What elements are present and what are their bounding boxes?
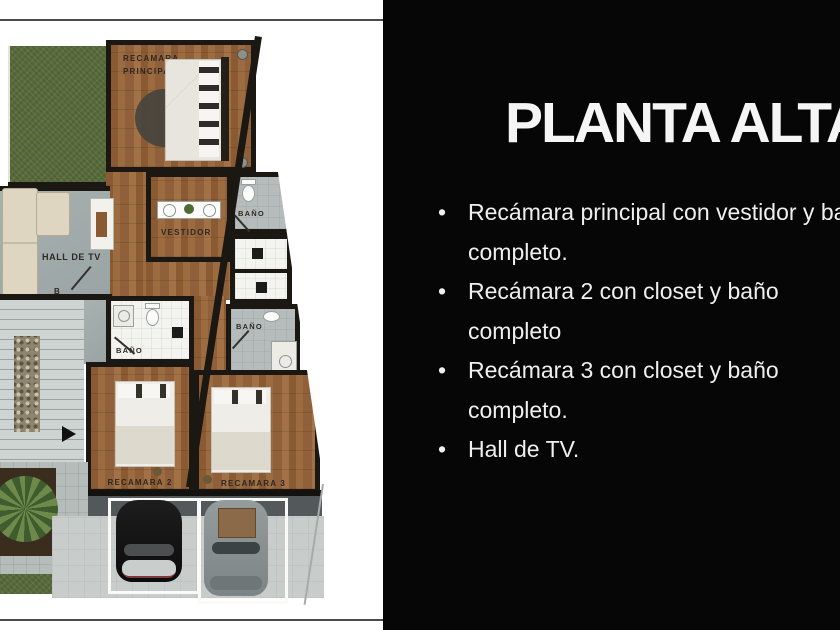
feature-text: completo. [468, 233, 840, 273]
car-roof-box [218, 508, 256, 538]
feature-item: • Recámara 2 con closet y baño completo [438, 272, 840, 351]
tv-unit-wood [96, 212, 107, 237]
closet-unit [256, 282, 267, 293]
sink [263, 311, 280, 322]
top-border-line [0, 19, 383, 21]
feature-list: • Recámara principal con vestidor y baño… [438, 193, 840, 470]
sink [163, 204, 176, 217]
bed-blanket [212, 432, 270, 470]
feature-text: Recámara 2 con closet y baño [468, 272, 840, 312]
closet-unit [172, 327, 183, 338]
room-recamara-2: RECAMARA 2 [86, 362, 194, 494]
nightstand [203, 475, 212, 484]
stair-landing [84, 300, 106, 364]
sink [203, 204, 216, 217]
sofa-chaise [36, 192, 70, 236]
toilet [242, 185, 255, 202]
garden [8, 46, 108, 184]
bed [115, 381, 175, 467]
bullet-marker: • [438, 193, 462, 233]
bed [211, 387, 271, 473]
pebble-garden [14, 336, 40, 432]
bullet-marker: • [438, 351, 462, 391]
car-hood [122, 560, 176, 578]
car-bumper [210, 576, 262, 590]
room-vestidor: VESTIDOR [146, 172, 232, 262]
room-recamara-principal: RECAMARA PRINCIPAL [106, 40, 256, 172]
feature-text: Hall de TV. [468, 430, 840, 470]
car-windshield [124, 544, 174, 556]
bed-headboard [221, 57, 229, 161]
room-bano-2: BAÑO [106, 296, 194, 364]
bed-pillows [118, 384, 170, 398]
info-panel: PLANTA ALTA • Recámara principal con ves… [383, 0, 840, 630]
sofa [2, 188, 38, 296]
bed-blanket [116, 426, 174, 464]
bed-pillows [214, 390, 266, 404]
floor-plan: RECAMARA PRINCIPAL VESTIDOR BAÑO [0, 0, 383, 630]
bed-pillows [199, 61, 219, 157]
room-label: RECAMARA 3 [221, 478, 286, 489]
room-label: VESTIDOR [161, 227, 212, 238]
room-label: BAÑO [238, 208, 265, 219]
tv-unit [90, 198, 114, 250]
panel-title: PLANTA ALTA [505, 92, 840, 154]
feature-item: • Recámara 3 con closet y baño completo. [438, 351, 840, 430]
feature-text: completo [468, 312, 840, 352]
closets [230, 234, 292, 304]
feature-text: completo. [468, 391, 840, 431]
toilet [146, 309, 159, 326]
planter [0, 468, 56, 556]
bottom-border-line [0, 619, 383, 621]
plant-decor [184, 204, 194, 214]
direction-arrow [62, 426, 76, 442]
shower-drain [279, 355, 292, 368]
closet-divider [235, 269, 287, 273]
palm-plant [0, 476, 58, 542]
bullet-marker: • [438, 272, 462, 312]
nightstand [153, 467, 162, 476]
room-label: RECAMARA 2 [91, 477, 189, 488]
feature-item: • Hall de TV. [438, 430, 840, 470]
room-label: HALL DE TV [42, 252, 101, 263]
shower-drain [118, 310, 130, 322]
car-windshield [212, 542, 260, 554]
room-recamara-3: RECAMARA 3 [194, 370, 320, 494]
nightstand [237, 49, 248, 60]
feature-item: • Recámara principal con vestidor y baño… [438, 193, 840, 272]
car-gray [204, 500, 268, 596]
feature-text: Recámara 3 con closet y baño [468, 351, 840, 391]
real-estate-slide: RECAMARA PRINCIPAL VESTIDOR BAÑO [0, 0, 840, 630]
bullet-marker: • [438, 430, 462, 470]
closet-unit [252, 248, 263, 259]
car-black [116, 500, 182, 582]
feature-text: Recámara principal con vestidor y baño [468, 193, 840, 233]
stair-label: B [54, 286, 61, 297]
